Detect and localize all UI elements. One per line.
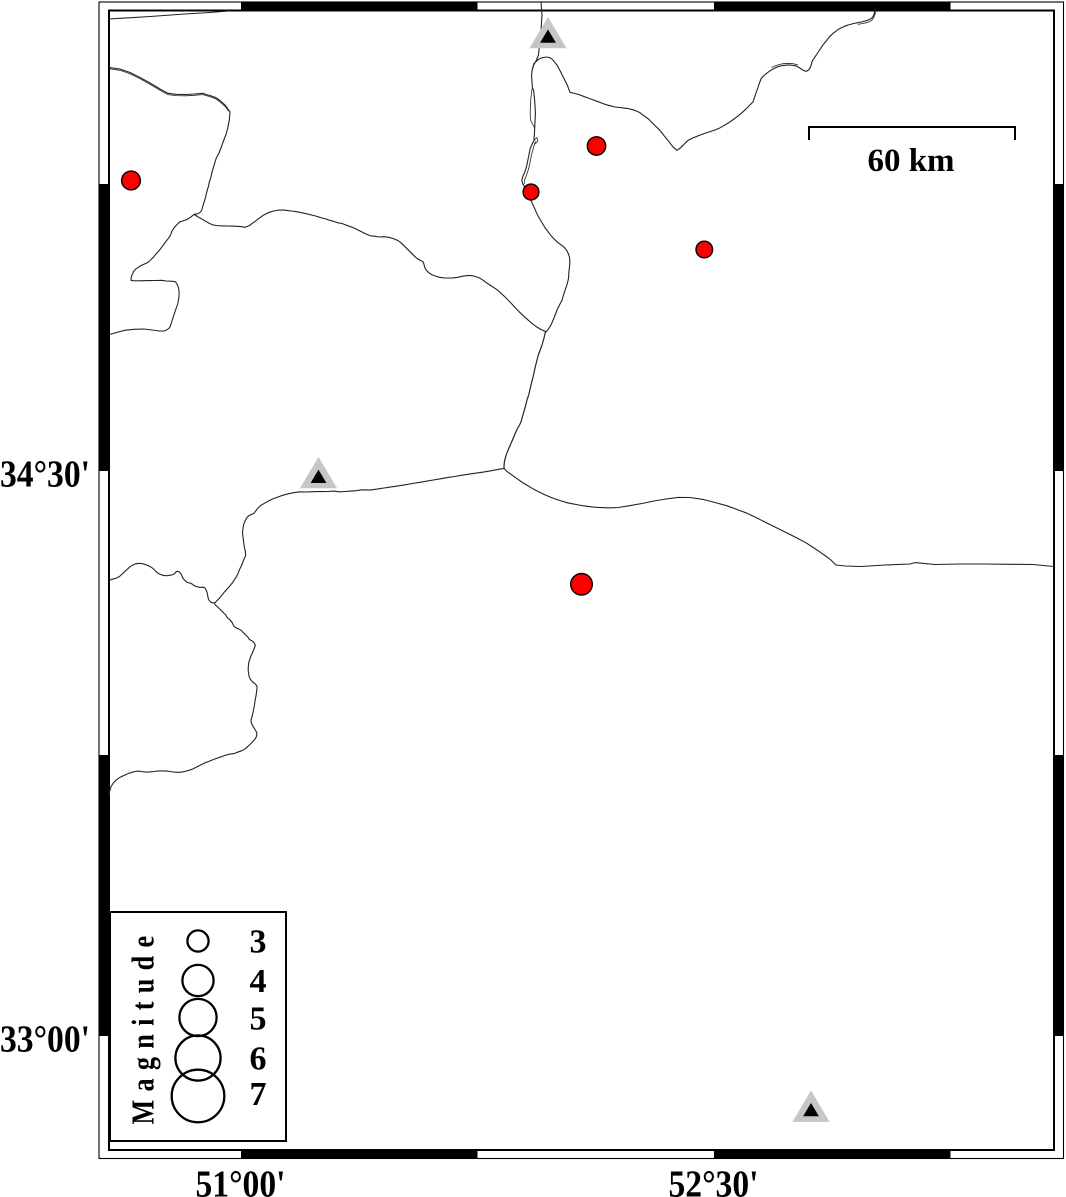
svg-text:60 km: 60 km: [867, 143, 954, 179]
svg-text:3: 3: [250, 924, 267, 961]
svg-text:52°30': 52°30': [669, 1164, 759, 1197]
svg-text:6: 6: [250, 1041, 267, 1078]
svg-text:4: 4: [250, 963, 267, 1000]
svg-text:7: 7: [250, 1076, 267, 1113]
svg-text:34°30': 34°30': [0, 454, 90, 496]
svg-text:33°00': 33°00': [0, 1019, 90, 1061]
svg-text:51°00': 51°00': [196, 1164, 286, 1197]
svg-text:5: 5: [250, 1001, 267, 1038]
